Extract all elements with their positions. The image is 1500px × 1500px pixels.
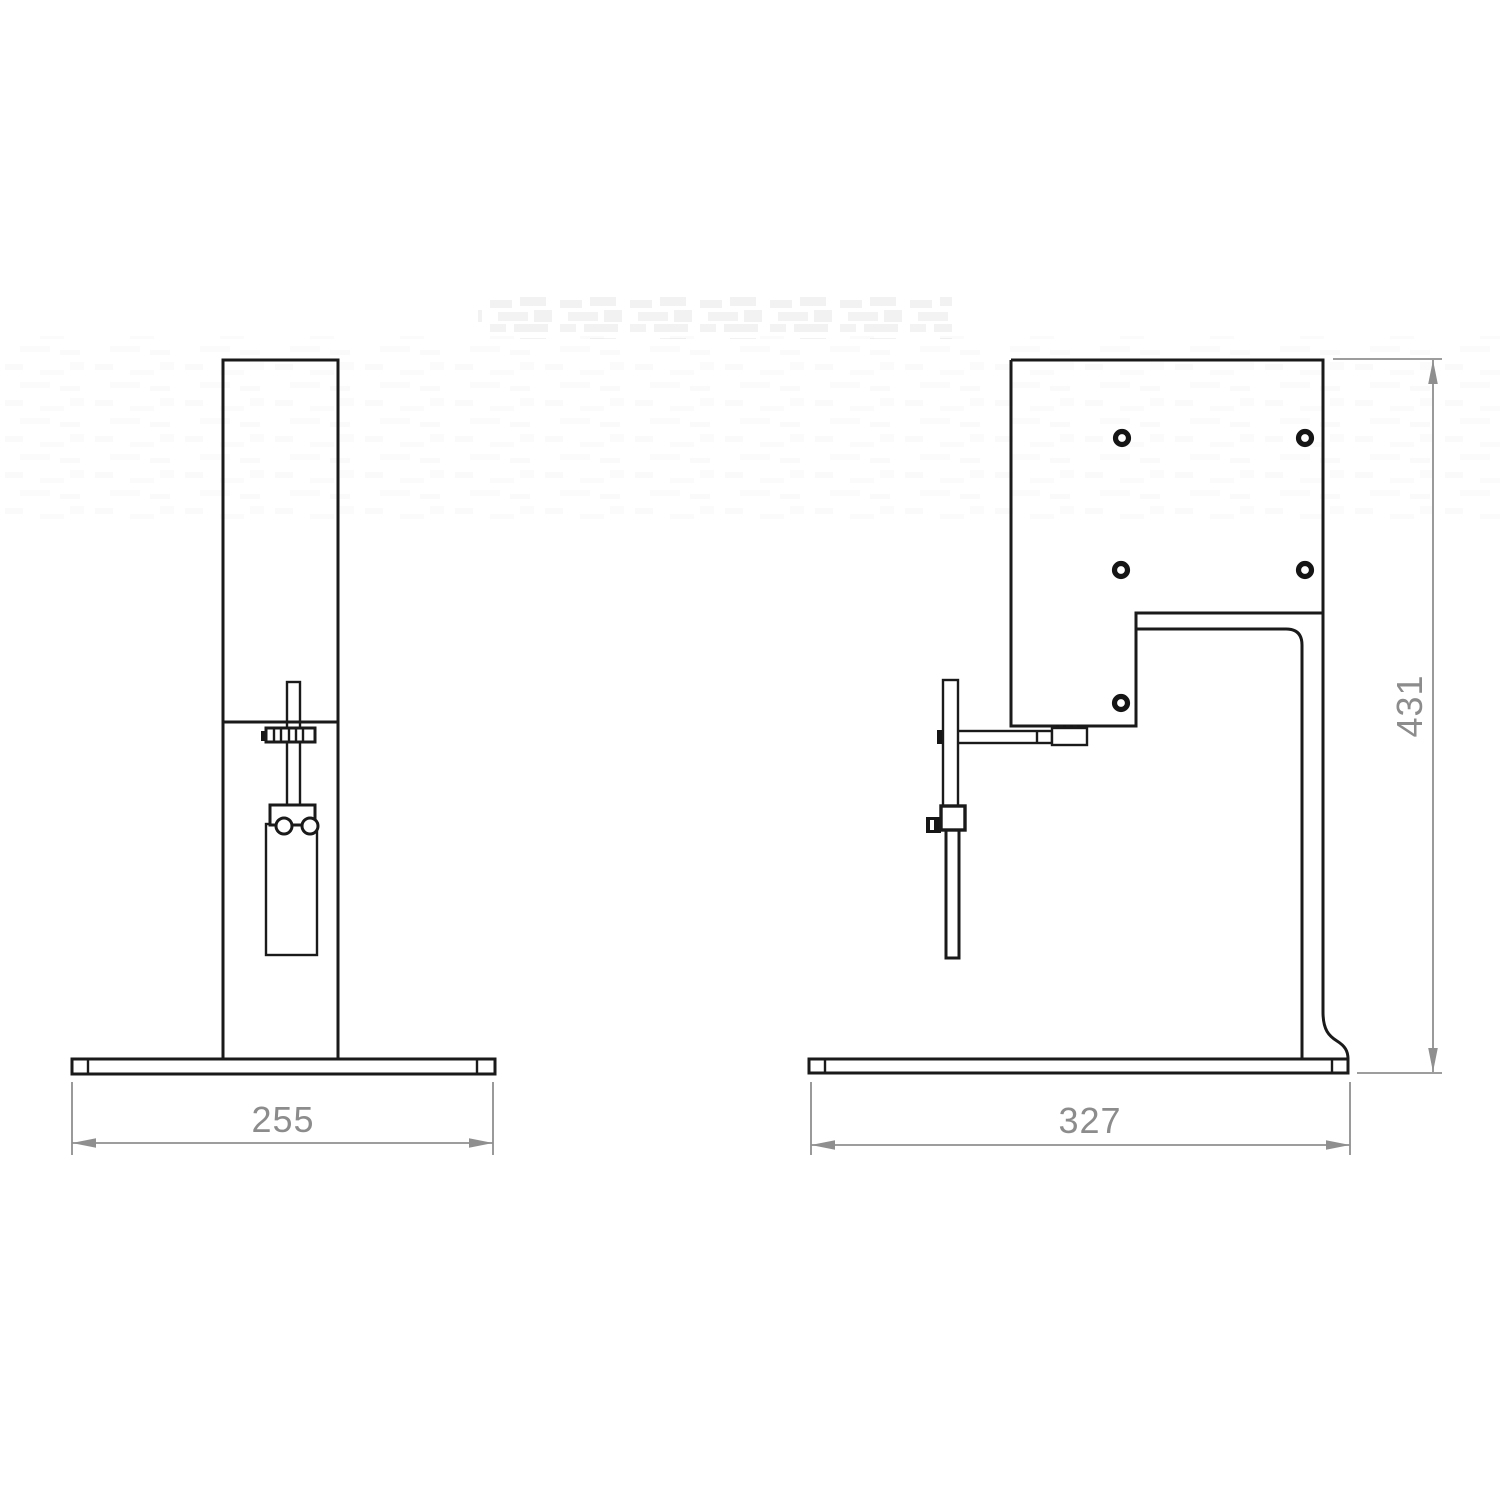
dim-label-side-width: 327 [1058,1100,1121,1141]
side-screw-hole-bottom [1115,697,1128,710]
front-wheel-left [276,818,292,834]
side-arm [943,728,1087,745]
technical-drawing: 255 327 431 [0,0,1500,1500]
noise-band [0,336,1500,526]
side-screw-hole-top-left [1116,432,1129,445]
side-arm-bar [943,680,958,806]
dim-label-side-height: 431 [1389,674,1430,737]
side-base [809,1059,1348,1073]
dim-label-front-width: 255 [251,1099,314,1140]
side-clamp-block [941,806,965,830]
front-base [72,1059,495,1074]
side-screw-hole-mid-left [1115,564,1128,577]
front-hanging-plate [266,824,317,955]
side-clamp-knob-slit [930,820,934,830]
side-screw-hole-mid-right [1299,564,1312,577]
side-probe-rod [946,822,959,958]
drawing-canvas: 255 327 431 [0,0,1500,1500]
watermark-band [478,297,952,339]
front-wheel-right [302,818,318,834]
side-screw-hole-top-right [1299,432,1312,445]
background [0,0,1500,1500]
